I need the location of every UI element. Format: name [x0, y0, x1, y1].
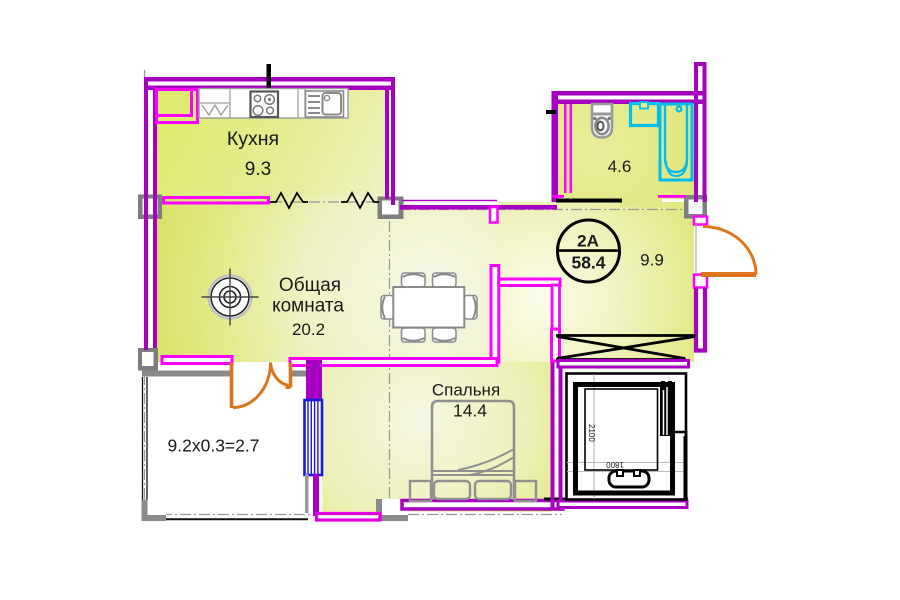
svg-text:Спальня: Спальня — [432, 381, 500, 400]
svg-text:9.3: 9.3 — [245, 159, 271, 180]
svg-text:1800: 1800 — [606, 460, 624, 469]
svg-text:20.2: 20.2 — [292, 320, 325, 339]
svg-text:2А: 2А — [577, 232, 599, 251]
svg-text:14.4: 14.4 — [453, 401, 487, 421]
svg-text:9.2x0.3=2.7: 9.2x0.3=2.7 — [168, 436, 260, 456]
svg-text:Общая: Общая — [279, 275, 341, 296]
svg-text:2100: 2100 — [587, 424, 596, 442]
svg-text:9.9: 9.9 — [640, 251, 664, 270]
svg-text:4.6: 4.6 — [608, 157, 632, 176]
svg-text:Кухня: Кухня — [227, 128, 279, 150]
svg-text:58.4: 58.4 — [571, 253, 605, 273]
svg-text:комната: комната — [272, 296, 344, 317]
